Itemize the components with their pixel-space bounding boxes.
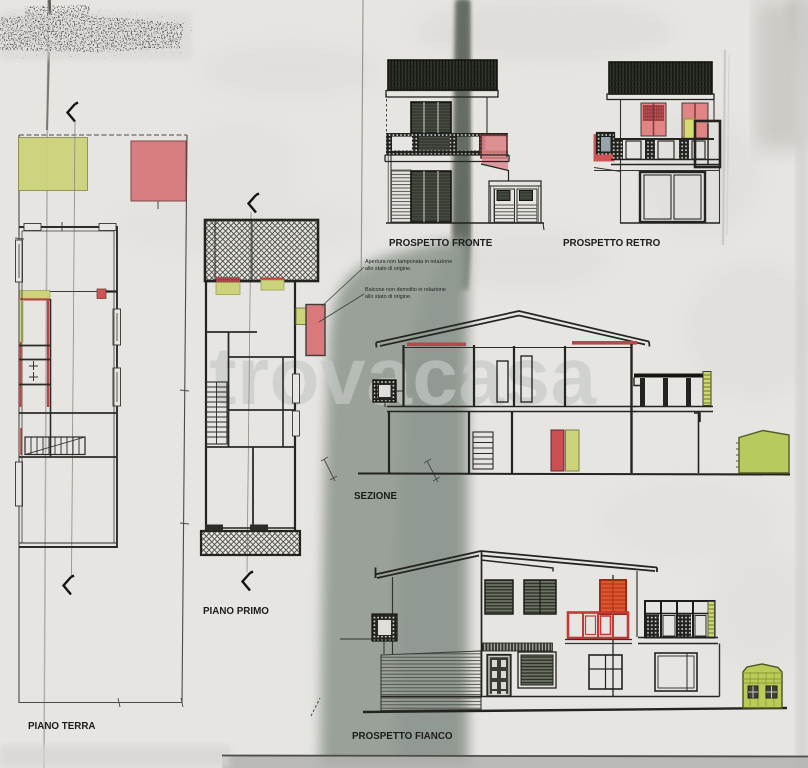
svg-text:PIANO TERRA: PIANO TERRA	[28, 721, 96, 732]
svg-text:Balcone non demolito in relazi: Balcone non demolito in relazione	[365, 287, 446, 293]
svg-text:PROSPETTO FRONTE: PROSPETTO FRONTE	[389, 238, 493, 249]
svg-text:SEZIONE: SEZIONE	[354, 491, 397, 502]
svg-text:allo stato di origine.: allo stato di origine.	[365, 266, 411, 272]
svg-text:PIANO PRIMO: PIANO PRIMO	[203, 606, 269, 617]
svg-text:PROSPETTO RETRO: PROSPETTO RETRO	[563, 238, 661, 249]
svg-text:allo stato di origine.: allo stato di origine.	[365, 294, 411, 300]
svg-text:PROSPETTO FIANCO: PROSPETTO FIANCO	[352, 731, 453, 742]
svg-text:Apertura non tamponata in rela: Apertura non tamponata in relazione	[365, 259, 452, 265]
